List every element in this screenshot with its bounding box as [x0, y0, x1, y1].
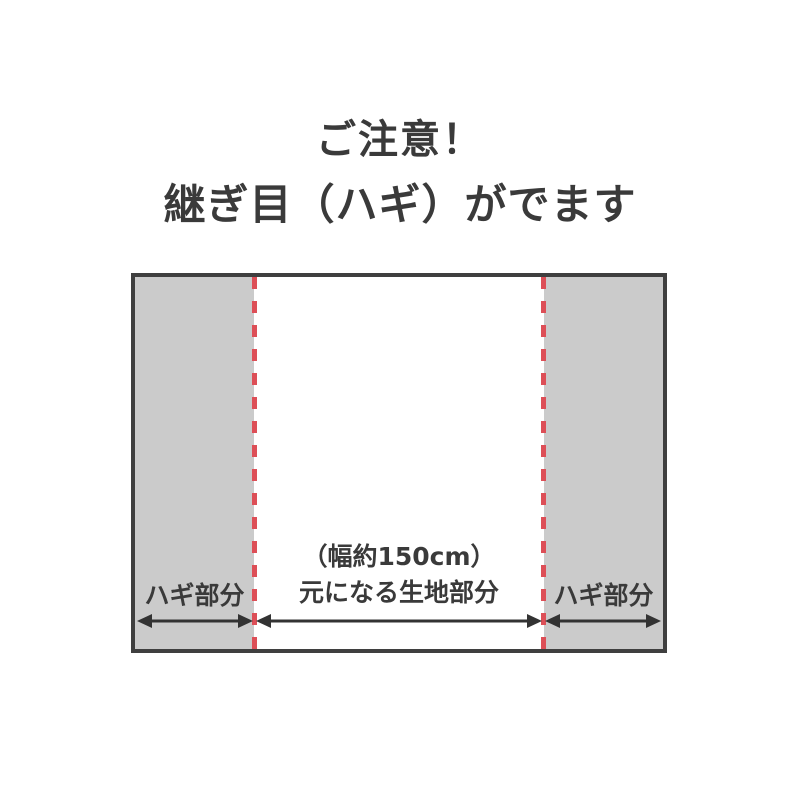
title-caution: ご注意！ [0, 118, 800, 162]
center-label-block: （幅約150cm） 元になる生地部分 [254, 539, 544, 611]
title-block: ご注意！ 継ぎ目（ハギ）がでます [0, 118, 800, 228]
width-arrow-left-icon [137, 611, 253, 631]
notice-infographic: ご注意！ 継ぎ目（ハギ）がでます ハギ部分 （幅約150cm） 元になる生地部分… [0, 0, 800, 800]
center-label-width: （幅約150cm） [254, 539, 544, 575]
fabric-seam-diagram: ハギ部分 （幅約150cm） 元になる生地部分 ハギ部分 [131, 273, 667, 653]
hagi-label-left: ハギ部分 [135, 583, 254, 608]
title-seam-notice: 継ぎ目（ハギ）がでます [0, 182, 800, 228]
width-arrow-right-icon [545, 611, 661, 631]
width-arrow-center-icon [256, 611, 542, 631]
center-label-fabric: 元になる生地部分 [254, 575, 544, 611]
hagi-label-right: ハギ部分 [544, 583, 663, 608]
